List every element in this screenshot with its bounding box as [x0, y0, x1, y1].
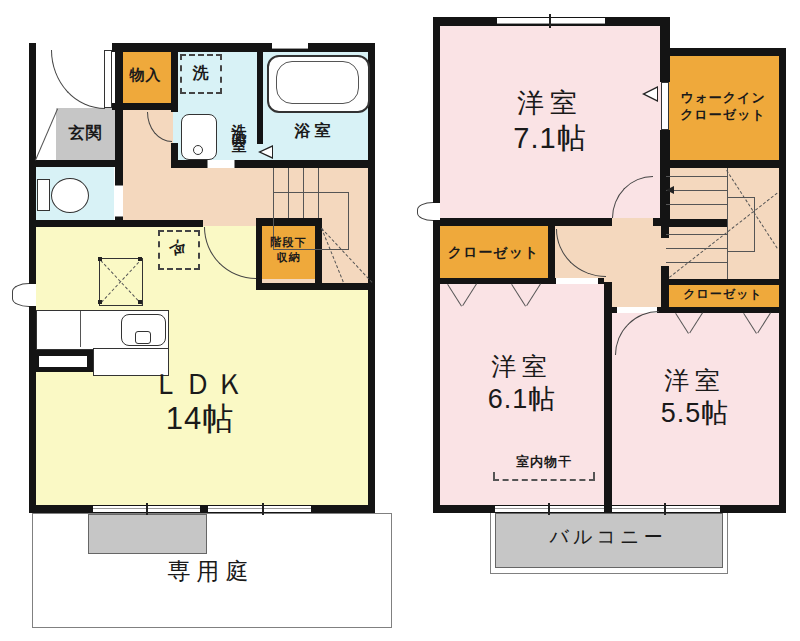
fridge-label: 冷	[158, 240, 200, 257]
washer-label: 洗	[180, 64, 222, 82]
washroom-label: 洗面室	[228, 66, 248, 176]
bedroom3-size-label: 5.5帖	[608, 398, 782, 429]
floor-plan: 洗 冷	[0, 0, 800, 641]
ldk-label: ＬＤＫ	[105, 368, 295, 401]
bedroom1-size-label: 7.1帖	[440, 122, 660, 155]
indoor-drying-bracket	[493, 472, 595, 481]
genkan-label: 玄関	[56, 124, 115, 142]
monoiri-label: 物入	[120, 66, 171, 83]
garden-label: 専用庭	[32, 558, 390, 584]
under-stair-storage-label: 階段下 収納	[259, 235, 318, 265]
balcony-label: バルコニー	[495, 526, 721, 548]
ldk-size-label: 14帖	[105, 401, 295, 437]
bedroom2-size-label: 6.1帖	[436, 384, 608, 415]
bedroom1-label: 洋室	[440, 88, 660, 119]
closet-right-label: クローゼット	[666, 288, 780, 302]
indoor-drying-label: 室内物干	[493, 455, 595, 470]
bedroom3-label: 洋室	[608, 366, 782, 395]
bathroom-label: 浴室	[277, 122, 352, 140]
wic-label: ウォークイン クローゼット	[666, 90, 780, 124]
closet-left-label: クローゼット	[438, 244, 549, 260]
bedroom2-label: 洋室	[436, 352, 608, 381]
